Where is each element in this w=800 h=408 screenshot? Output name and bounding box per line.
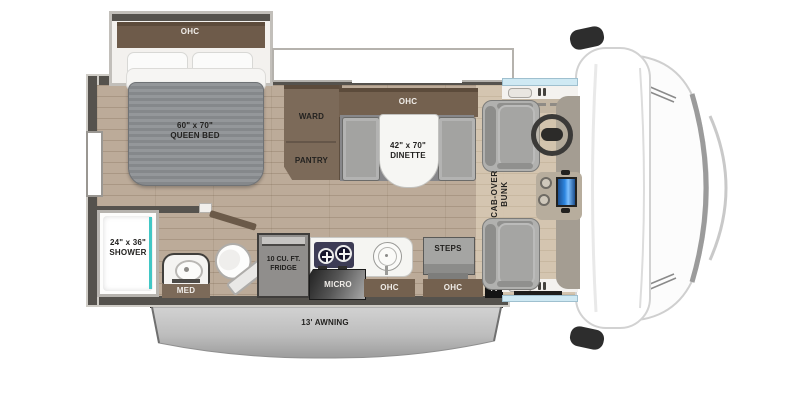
entry-ohc-label: OHC	[423, 283, 483, 293]
micro-label: MICRO	[312, 280, 364, 290]
queen-bed-label: 60" x 70" QUEEN BED	[145, 121, 245, 142]
steering-wheel-icon	[531, 114, 573, 156]
med-label: MED	[162, 286, 210, 296]
door-handle-icon	[543, 88, 546, 96]
shower-label: 24" x 36" SHOWER	[97, 238, 159, 259]
cab-window-bottom	[502, 295, 578, 302]
rv-floorplan: 13' AWNING OHC 60" x 70" QUEEN BED	[0, 0, 800, 408]
cooktop	[314, 242, 354, 268]
slideout-wall	[112, 14, 270, 21]
dinette-slideout	[272, 48, 514, 82]
dinette-label: 42" x 70" DINETTE	[368, 141, 448, 162]
faucet	[385, 266, 388, 275]
fridge-label: 10 CU. FT. FRIDGE	[257, 255, 310, 273]
burner-icon	[318, 248, 334, 264]
cupholder-icon	[538, 194, 550, 206]
vanity-slot	[172, 279, 200, 283]
dinette-ohc-label: OHC	[368, 97, 448, 107]
slideout-highlight	[352, 78, 462, 83]
kitchen-ohc-label: OHC	[364, 283, 415, 293]
bedroom-ohc-label: OHC	[150, 27, 230, 37]
mirror-top-icon	[568, 25, 605, 52]
grab-handle	[508, 88, 532, 98]
pantry-label: PANTRY	[284, 156, 339, 166]
infotainment-screen	[556, 177, 577, 207]
console-knob	[561, 208, 570, 213]
burner-icon	[335, 245, 352, 262]
mirror-bottom-icon	[568, 325, 605, 352]
door-handle-icon	[538, 88, 541, 96]
steps-label: STEPS	[423, 244, 473, 254]
awning-canopy	[150, 307, 503, 359]
console-knob	[561, 170, 570, 175]
cab-window-top	[502, 78, 578, 86]
rear-window	[86, 131, 103, 197]
door-handle-icon	[543, 282, 546, 290]
awning-label: 13' AWNING	[240, 318, 410, 328]
cab-over-bunk-label: CAB-OVER BUNK	[490, 154, 530, 234]
cupholder-icon	[540, 177, 552, 189]
ward-label: WARD	[284, 112, 339, 122]
entry-steps	[423, 237, 475, 275]
